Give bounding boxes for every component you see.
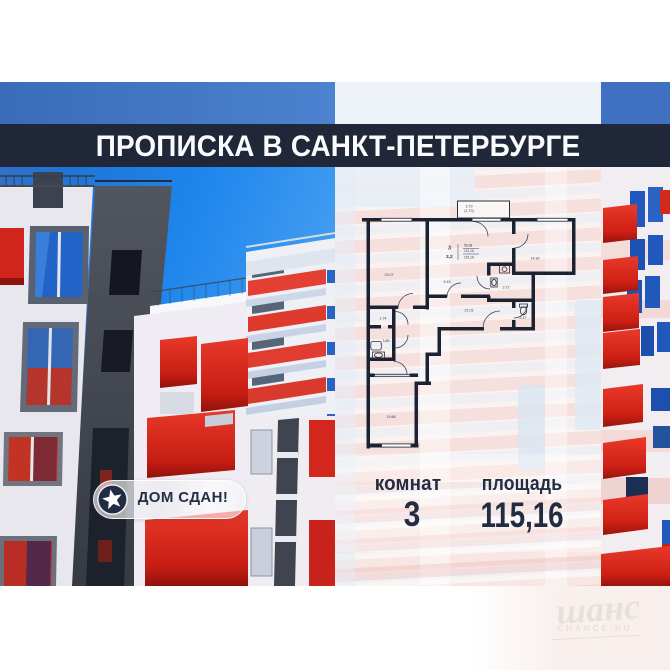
svg-text:115,16: 115,16	[464, 256, 474, 260]
svg-text:(1.70): (1.70)	[464, 209, 473, 213]
svg-text:3,2: 3,2	[446, 254, 453, 260]
svg-text:3: 3	[448, 246, 451, 252]
svg-text:1.74: 1.74	[380, 317, 387, 321]
svg-text:113,16: 113,16	[464, 249, 474, 253]
svg-text:56,38: 56,38	[464, 244, 472, 248]
svg-text:2.17: 2.17	[520, 316, 527, 320]
svg-text:3.72: 3.72	[503, 286, 510, 290]
svg-text:9.15: 9.15	[444, 280, 451, 284]
svg-text:23.07: 23.07	[385, 273, 394, 277]
svg-text:3.85: 3.85	[383, 339, 390, 343]
svg-text:14.30: 14.30	[531, 257, 540, 261]
svg-text:19.88: 19.88	[387, 415, 396, 419]
svg-text:21.01: 21.01	[465, 309, 474, 313]
svg-text:3.70: 3.70	[466, 205, 473, 209]
